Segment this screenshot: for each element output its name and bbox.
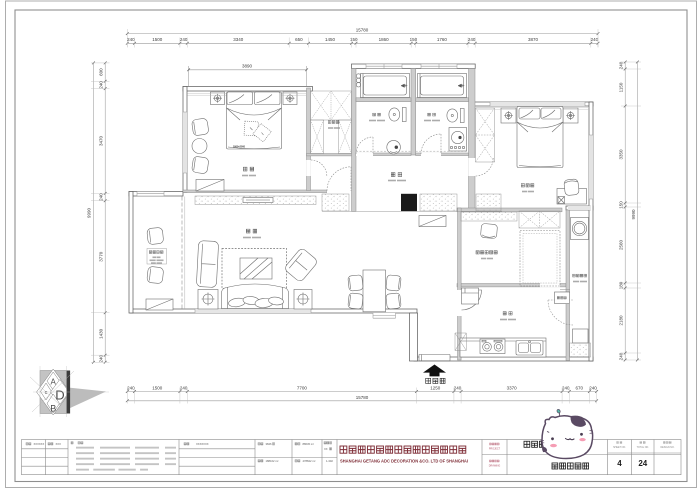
svg-text:2180: 2180 [619,315,624,326]
svg-text:3870: 3870 [528,37,539,42]
svg-text:2560: 2560 [619,239,624,250]
svg-text:150: 150 [410,37,418,42]
svg-text:1150: 1150 [619,82,624,92]
svg-text:240: 240 [127,385,135,390]
svg-text:SHANGHAI GETANG ADC DECORAT: SHANGHAI GETANG ADC DECORATION &CO. LTD … [340,459,468,464]
svg-text:1500: 1500 [152,385,163,390]
svg-text:3340: 3340 [233,37,244,42]
svg-text:XXX: XXX [56,442,62,446]
svg-text:DRAWING: DRAWING [489,465,501,468]
svg-text:150: 150 [350,37,358,42]
svg-text:600: 600 [99,68,104,76]
svg-text:D: D [55,388,64,403]
svg-text:TOTAL NO.: TOTAL NO. [637,446,650,449]
svg-text:15780: 15780 [356,395,369,400]
svg-text:1760: 1760 [437,37,448,42]
svg-text:1430: 1430 [99,328,104,339]
svg-text:DESIGN NO.: DESIGN NO. [660,446,674,449]
svg-text:15780: 15780 [356,27,369,32]
svg-text:1250: 1250 [430,385,441,390]
svg-text:240: 240 [180,37,188,42]
svg-text:240: 240 [180,385,188,390]
svg-text:1860: 1860 [379,37,390,42]
svg-text:1450: 1450 [325,37,336,42]
svg-text:SHEET NO.: SHEET NO. [613,446,626,449]
svg-text:3770: 3770 [99,251,104,262]
svg-text:240: 240 [589,385,597,390]
svg-text:240: 240 [468,37,476,42]
svg-text:3470: 3470 [99,135,104,146]
svg-text:1500: 1500 [152,37,163,42]
svg-text:24: 24 [638,459,647,468]
svg-text:3890: 3890 [242,64,253,69]
svg-text:240: 240 [619,61,624,69]
svg-text:3370: 3370 [507,385,518,390]
svg-text:XXXXXXX: XXXXXXX [196,442,209,446]
svg-text:PROJECT: PROJECT [489,448,501,451]
svg-text:478842 m²: 478842 m² [303,459,316,463]
svg-text:240: 240 [619,352,624,360]
svg-text:240: 240 [99,355,104,363]
svg-text:XX: XX [324,447,328,451]
svg-text:240: 240 [454,385,462,390]
svg-text:240: 240 [562,385,570,390]
svg-text:240: 240 [99,81,104,89]
svg-text:1-302: 1-302 [326,459,333,463]
svg-text:9990: 9990 [86,207,91,218]
svg-text:7700: 7700 [297,385,308,390]
svg-text:650: 650 [295,37,303,42]
svg-text:188162 m²: 188162 m² [266,459,279,463]
svg-text:88645 m²: 88645 m² [303,442,314,446]
svg-text:1800×2000: 1800×2000 [233,146,246,149]
svg-text:9990: 9990 [631,209,636,220]
svg-text:670: 670 [576,385,584,390]
svg-text:150: 150 [619,201,624,209]
svg-text:B: B [50,404,56,414]
svg-text:A: A [51,378,57,387]
svg-text:4: 4 [617,459,622,468]
svg-text:XXXXXX: XXXXXX [34,442,45,446]
svg-text:240: 240 [127,37,135,42]
svg-text:3846: 3846 [266,442,272,446]
svg-text:240: 240 [99,193,104,201]
svg-text:3350: 3350 [619,149,624,160]
svg-text:240: 240 [591,37,599,42]
